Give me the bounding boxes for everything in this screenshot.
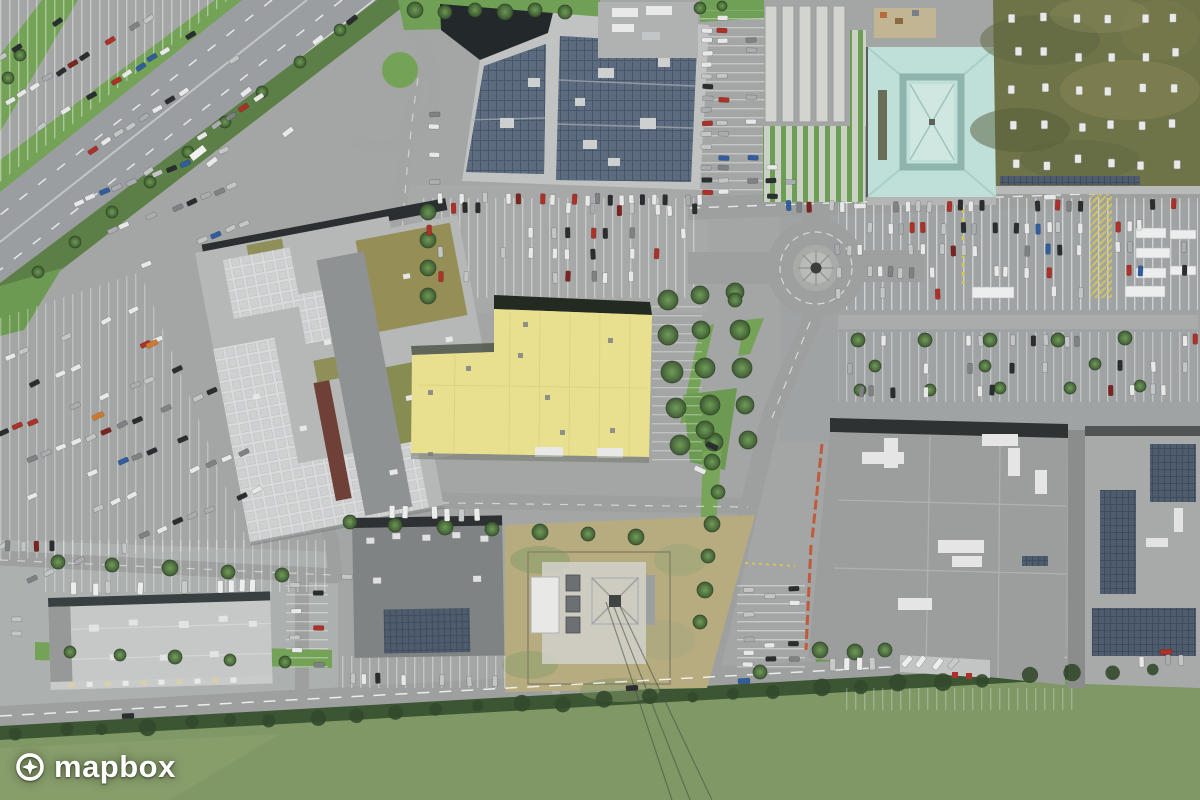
car <box>290 583 301 588</box>
car <box>980 200 985 211</box>
car <box>1182 265 1187 276</box>
car <box>898 268 903 279</box>
tree <box>1051 333 1065 347</box>
skylight <box>1174 160 1181 169</box>
car <box>766 656 777 661</box>
yellow-walkway <box>1090 192 1112 298</box>
car <box>290 635 301 640</box>
tree <box>693 615 707 629</box>
car <box>807 202 812 213</box>
car <box>608 195 613 206</box>
car <box>1036 224 1041 235</box>
tree <box>69 236 81 248</box>
tree <box>658 290 678 310</box>
car <box>829 200 834 211</box>
plant-rows-south <box>763 126 865 202</box>
tree <box>334 24 346 36</box>
hedge-tree <box>186 715 199 728</box>
skylight <box>1015 47 1022 56</box>
car <box>218 581 224 594</box>
car <box>789 600 800 605</box>
ramp-loop-green <box>382 52 418 88</box>
tree <box>1134 380 1146 392</box>
car <box>1035 201 1040 212</box>
tree <box>51 555 65 569</box>
car <box>697 194 702 205</box>
tree <box>224 654 236 666</box>
skylight <box>1075 53 1082 62</box>
tree <box>851 333 865 347</box>
hedge-tree <box>224 714 236 726</box>
skylight <box>1107 120 1114 129</box>
warehouse-building <box>48 591 273 690</box>
pedestrian-band <box>838 315 1198 329</box>
car <box>630 248 635 259</box>
car <box>462 202 467 213</box>
skylight <box>1171 84 1178 93</box>
hedge-tree <box>1022 667 1038 683</box>
facade-solar-strip <box>1000 176 1140 185</box>
tree <box>420 260 436 276</box>
skylight <box>1044 162 1051 171</box>
car <box>11 617 22 622</box>
tree <box>728 293 742 307</box>
car <box>1138 266 1143 277</box>
car <box>899 224 904 235</box>
hedge-tree <box>310 710 326 726</box>
car <box>401 675 406 686</box>
hedge-tree <box>349 708 364 723</box>
hedge-tree <box>514 695 531 712</box>
east-solar-array-3 <box>1092 608 1196 656</box>
tree <box>730 320 750 340</box>
car <box>881 335 886 346</box>
car <box>1003 266 1008 277</box>
car <box>11 631 22 636</box>
car <box>617 205 622 216</box>
skylight <box>1105 87 1112 96</box>
car <box>375 673 380 684</box>
car <box>619 195 624 206</box>
car <box>314 663 325 668</box>
car <box>701 107 712 112</box>
mapbox-logo[interactable]: mapbox <box>15 751 176 782</box>
car <box>993 223 998 234</box>
car <box>968 363 973 374</box>
car <box>718 189 729 194</box>
car <box>1151 361 1156 372</box>
car <box>961 245 966 256</box>
car <box>765 594 776 599</box>
tree <box>736 396 754 414</box>
tree <box>1064 382 1076 394</box>
car <box>50 541 55 552</box>
tree <box>701 549 715 563</box>
car <box>1128 242 1133 253</box>
skylight <box>1013 160 1020 169</box>
car <box>440 675 445 686</box>
tree <box>704 454 720 470</box>
tree <box>979 360 991 372</box>
car <box>1183 362 1188 373</box>
car <box>994 266 999 277</box>
truck-yard <box>598 2 698 58</box>
car <box>767 165 778 170</box>
car <box>528 227 533 238</box>
car <box>947 201 952 212</box>
hedge-tree <box>642 688 658 704</box>
car <box>968 201 973 212</box>
hedge-tree <box>596 691 613 708</box>
tree <box>558 5 572 19</box>
tree <box>1089 358 1101 370</box>
car <box>1057 245 1062 256</box>
car <box>703 96 714 101</box>
substation-building <box>531 577 559 633</box>
tree <box>532 524 548 540</box>
car <box>361 674 366 685</box>
skylight <box>1079 123 1086 132</box>
car <box>21 541 26 552</box>
car <box>1137 220 1142 231</box>
car <box>717 73 728 78</box>
car <box>916 201 921 212</box>
car <box>122 713 134 719</box>
car <box>1115 242 1120 253</box>
car <box>797 202 802 213</box>
busbar-row <box>646 575 655 625</box>
tree <box>670 435 690 455</box>
car <box>835 244 840 255</box>
car <box>702 121 713 126</box>
car <box>888 266 893 277</box>
tree <box>700 395 720 415</box>
hedge-tree <box>96 723 108 735</box>
car <box>429 179 440 184</box>
car <box>920 222 925 233</box>
car <box>239 579 245 592</box>
tree <box>717 1 727 11</box>
car <box>1171 198 1176 209</box>
car <box>764 643 775 648</box>
tree <box>343 515 357 529</box>
car <box>1042 362 1047 373</box>
car <box>566 203 571 214</box>
car <box>1052 286 1057 297</box>
car <box>1055 222 1060 233</box>
car <box>93 583 99 596</box>
car <box>701 62 712 67</box>
car <box>785 179 796 184</box>
car <box>249 579 255 592</box>
car <box>746 95 757 100</box>
car <box>966 335 971 346</box>
car <box>717 38 728 43</box>
skylight <box>1075 155 1082 164</box>
car <box>5 540 10 551</box>
car <box>476 203 481 214</box>
car <box>402 506 408 519</box>
car <box>746 48 757 53</box>
tree <box>407 2 423 18</box>
tree <box>420 204 436 220</box>
car <box>389 506 395 519</box>
car <box>292 648 303 653</box>
car <box>989 385 994 396</box>
car <box>1077 245 1082 256</box>
car <box>427 225 432 236</box>
hedge-tree <box>60 722 73 735</box>
car <box>1014 223 1019 234</box>
car <box>654 248 659 259</box>
car <box>836 288 841 299</box>
car <box>1127 265 1132 276</box>
car <box>1193 334 1198 345</box>
skylight <box>1076 86 1083 95</box>
car <box>229 580 235 593</box>
car <box>1078 201 1083 212</box>
dark-store-solar-array <box>384 608 471 653</box>
car <box>565 271 570 282</box>
car <box>847 245 852 256</box>
car <box>701 144 712 149</box>
hedge-tree <box>555 696 571 712</box>
skylight <box>1074 14 1081 23</box>
big-store-building <box>806 418 1068 685</box>
skylight <box>1169 119 1176 128</box>
car <box>1150 199 1155 210</box>
skylight <box>1040 13 1047 22</box>
hedge-tree <box>889 674 907 692</box>
car <box>844 658 850 671</box>
skylight <box>1108 53 1115 62</box>
warehouse-roof <box>48 591 273 690</box>
car <box>859 386 864 397</box>
car <box>743 587 754 592</box>
skylight <box>1040 47 1047 56</box>
car <box>923 363 928 374</box>
east-solar-array-2 <box>1150 444 1196 502</box>
car <box>940 244 945 255</box>
car <box>467 676 472 687</box>
car <box>552 228 557 239</box>
car <box>927 201 932 212</box>
car <box>719 97 730 102</box>
car <box>742 662 753 667</box>
hedge-tree <box>813 679 831 697</box>
car <box>1118 360 1123 371</box>
car <box>595 193 600 204</box>
skylight <box>1140 84 1147 93</box>
teal-roof-strip <box>878 90 887 160</box>
car <box>182 581 188 594</box>
car <box>591 228 596 239</box>
tree <box>695 358 715 378</box>
car <box>1031 336 1036 347</box>
car <box>893 201 898 212</box>
car <box>878 266 883 277</box>
car <box>951 246 956 257</box>
car <box>857 658 863 671</box>
car <box>718 178 729 183</box>
tree <box>468 3 482 17</box>
car <box>921 244 926 255</box>
car <box>663 195 668 206</box>
tree <box>2 72 14 84</box>
car <box>429 112 440 117</box>
car <box>935 289 940 300</box>
car <box>767 194 778 199</box>
car <box>1130 385 1135 396</box>
courtyard-centre <box>929 119 935 125</box>
car <box>788 641 799 646</box>
car <box>1183 336 1188 347</box>
tree <box>739 431 757 449</box>
car <box>719 156 730 161</box>
car <box>702 84 713 89</box>
tree <box>32 266 44 278</box>
big-store-solar-patch <box>1022 556 1048 566</box>
car <box>1025 246 1030 257</box>
tree <box>691 286 709 304</box>
skylight <box>1139 121 1146 130</box>
car <box>437 193 442 204</box>
car <box>977 386 982 397</box>
car <box>702 28 713 33</box>
aerial-imagery <box>0 0 1200 800</box>
car <box>1181 242 1186 253</box>
car <box>1067 201 1072 212</box>
car <box>1127 221 1132 232</box>
car <box>655 204 660 215</box>
tree <box>275 568 289 582</box>
skylight <box>1143 53 1150 62</box>
car <box>746 37 757 42</box>
hedge-tree <box>262 714 276 728</box>
hedge-tree <box>139 719 156 736</box>
tree <box>753 665 767 679</box>
car <box>718 165 729 170</box>
east-solar-building <box>1068 426 1200 688</box>
car <box>492 676 497 687</box>
tree <box>168 650 182 664</box>
hedge-tree <box>1147 664 1159 676</box>
hedge-tree <box>975 674 989 688</box>
car <box>686 195 691 206</box>
car <box>766 178 777 183</box>
car <box>958 200 963 211</box>
car <box>1055 200 1060 211</box>
car <box>1139 656 1144 667</box>
car <box>528 248 533 259</box>
car <box>342 574 353 579</box>
car <box>717 28 728 33</box>
car <box>451 203 456 214</box>
green-roof-store <box>970 0 1200 194</box>
tree <box>64 646 76 658</box>
car <box>909 268 914 279</box>
car <box>626 685 638 691</box>
car <box>1047 268 1052 279</box>
tree <box>388 518 402 532</box>
hedge-tree <box>1105 665 1119 679</box>
skylight <box>1008 85 1015 94</box>
tree <box>528 3 542 17</box>
car <box>1078 223 1083 234</box>
skylight <box>1042 83 1049 92</box>
car <box>444 509 450 522</box>
satellite-map[interactable]: mapbox <box>0 0 1200 800</box>
hedge-tree <box>472 700 483 711</box>
tree <box>106 206 118 218</box>
car <box>717 120 728 125</box>
car <box>830 658 836 671</box>
car <box>34 541 39 552</box>
tree <box>704 516 720 532</box>
car <box>1044 194 1056 200</box>
car <box>840 202 845 213</box>
car <box>603 228 608 239</box>
tree <box>732 358 752 378</box>
car <box>701 165 712 170</box>
car <box>1166 655 1171 666</box>
car <box>630 228 635 239</box>
hedge-tree <box>429 703 442 716</box>
car <box>702 38 713 43</box>
car <box>854 203 866 209</box>
car <box>1047 222 1052 233</box>
car <box>506 193 511 204</box>
car <box>429 152 440 157</box>
skylight <box>1104 15 1111 24</box>
mapbox-logo-icon <box>15 752 45 782</box>
car <box>1043 335 1048 346</box>
car <box>978 336 983 347</box>
car <box>681 228 686 239</box>
car <box>459 509 465 522</box>
skylight <box>1142 14 1149 23</box>
car <box>718 131 729 136</box>
tree <box>878 643 892 657</box>
tree <box>692 321 710 339</box>
car <box>910 222 915 233</box>
car <box>747 179 758 184</box>
car <box>550 195 555 206</box>
hedge-tree <box>934 673 952 691</box>
car <box>867 222 872 233</box>
car <box>746 119 757 124</box>
car <box>905 201 910 212</box>
car <box>701 132 712 137</box>
car <box>748 155 759 160</box>
tree <box>294 56 306 68</box>
tree <box>994 382 1006 394</box>
car <box>431 506 437 519</box>
car <box>313 626 324 631</box>
tree <box>983 333 997 347</box>
car <box>869 386 874 397</box>
skylight <box>1170 14 1177 23</box>
car <box>291 609 302 614</box>
tree <box>661 361 683 383</box>
car <box>701 74 712 79</box>
car <box>553 273 558 284</box>
car <box>1065 337 1070 348</box>
car <box>590 203 595 214</box>
car <box>1108 385 1113 396</box>
car <box>1116 222 1121 233</box>
car <box>572 194 577 205</box>
